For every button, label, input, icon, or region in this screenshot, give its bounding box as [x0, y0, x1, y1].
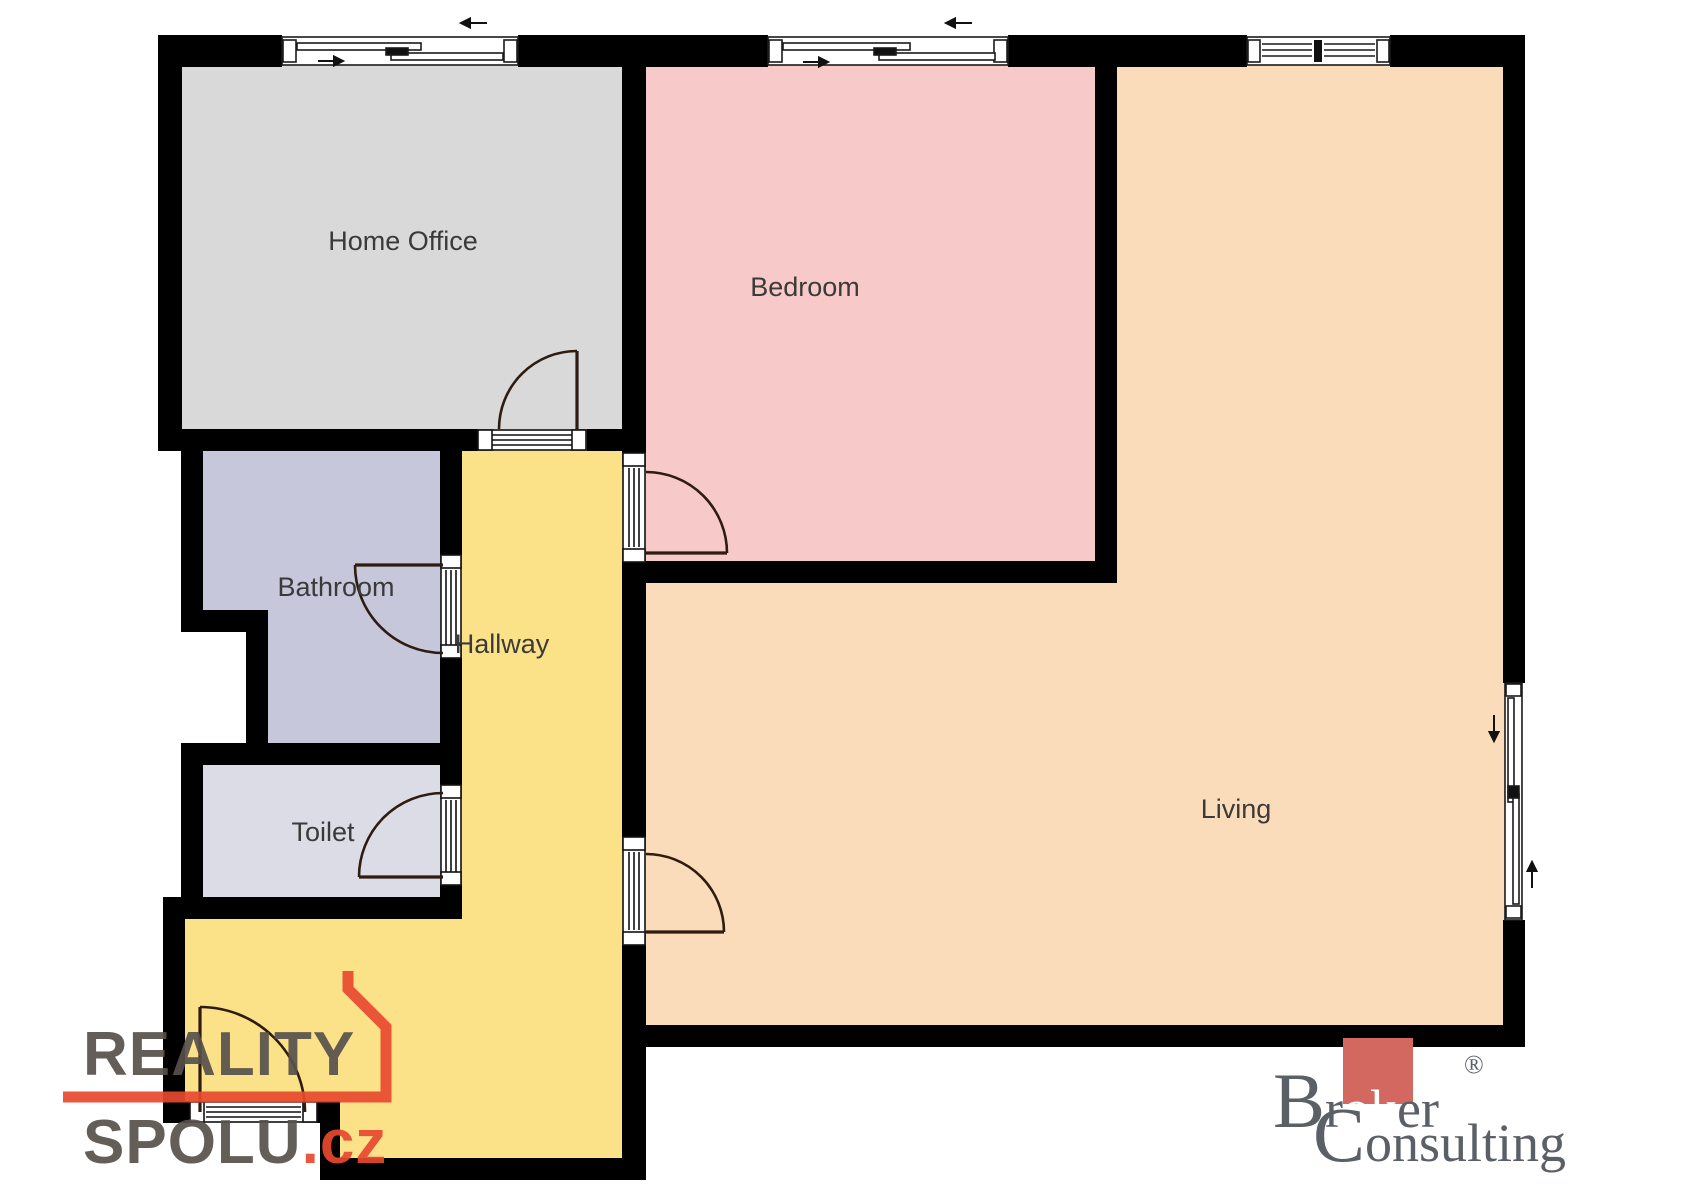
realityspolu-logo-line1: REALITY — [83, 1024, 355, 1086]
bedroom-door-frame — [623, 453, 645, 562]
hallway-label: Hallway — [455, 629, 550, 659]
toilet-label: Toilet — [291, 817, 355, 847]
realityspolu-logo-line2: SPOLU.cz — [83, 1112, 387, 1174]
living-door-frame — [623, 837, 645, 945]
bedroom-window — [768, 37, 1008, 65]
arrow-left-icon — [946, 19, 972, 28]
registered-trademark-icon: ® — [1464, 1050, 1484, 1080]
living-right-window — [1505, 683, 1522, 920]
home-office-door-frame — [478, 430, 586, 450]
bathroom-label: Bathroom — [277, 572, 394, 602]
room-floors — [180, 60, 1505, 1160]
home-office-label: Home Office — [328, 226, 478, 256]
living-top-window — [1247, 37, 1390, 65]
bedroom-label: Bedroom — [750, 272, 860, 302]
bedroom-floor — [645, 60, 1097, 565]
realityspolu-word-spolu: SPOLU — [83, 1108, 302, 1177]
home-office-window — [282, 37, 518, 65]
consulting-initial-c: C — [1313, 1091, 1365, 1178]
toilet-door-frame — [441, 785, 461, 885]
arrow-up-icon — [1528, 862, 1537, 888]
consulting-rest: onsulting — [1365, 1113, 1566, 1173]
arrow-left-icon — [461, 19, 487, 28]
realityspolu-tld: .cz — [302, 1108, 388, 1177]
broker-logo-line2: Consulting — [1313, 1096, 1566, 1174]
floorplan-image: Home Office Bedroom Bathroom Hallway Toi… — [0, 0, 1698, 1200]
living-label: Living — [1201, 794, 1272, 824]
realityspolu-word-reality: REALITY — [83, 1020, 355, 1089]
